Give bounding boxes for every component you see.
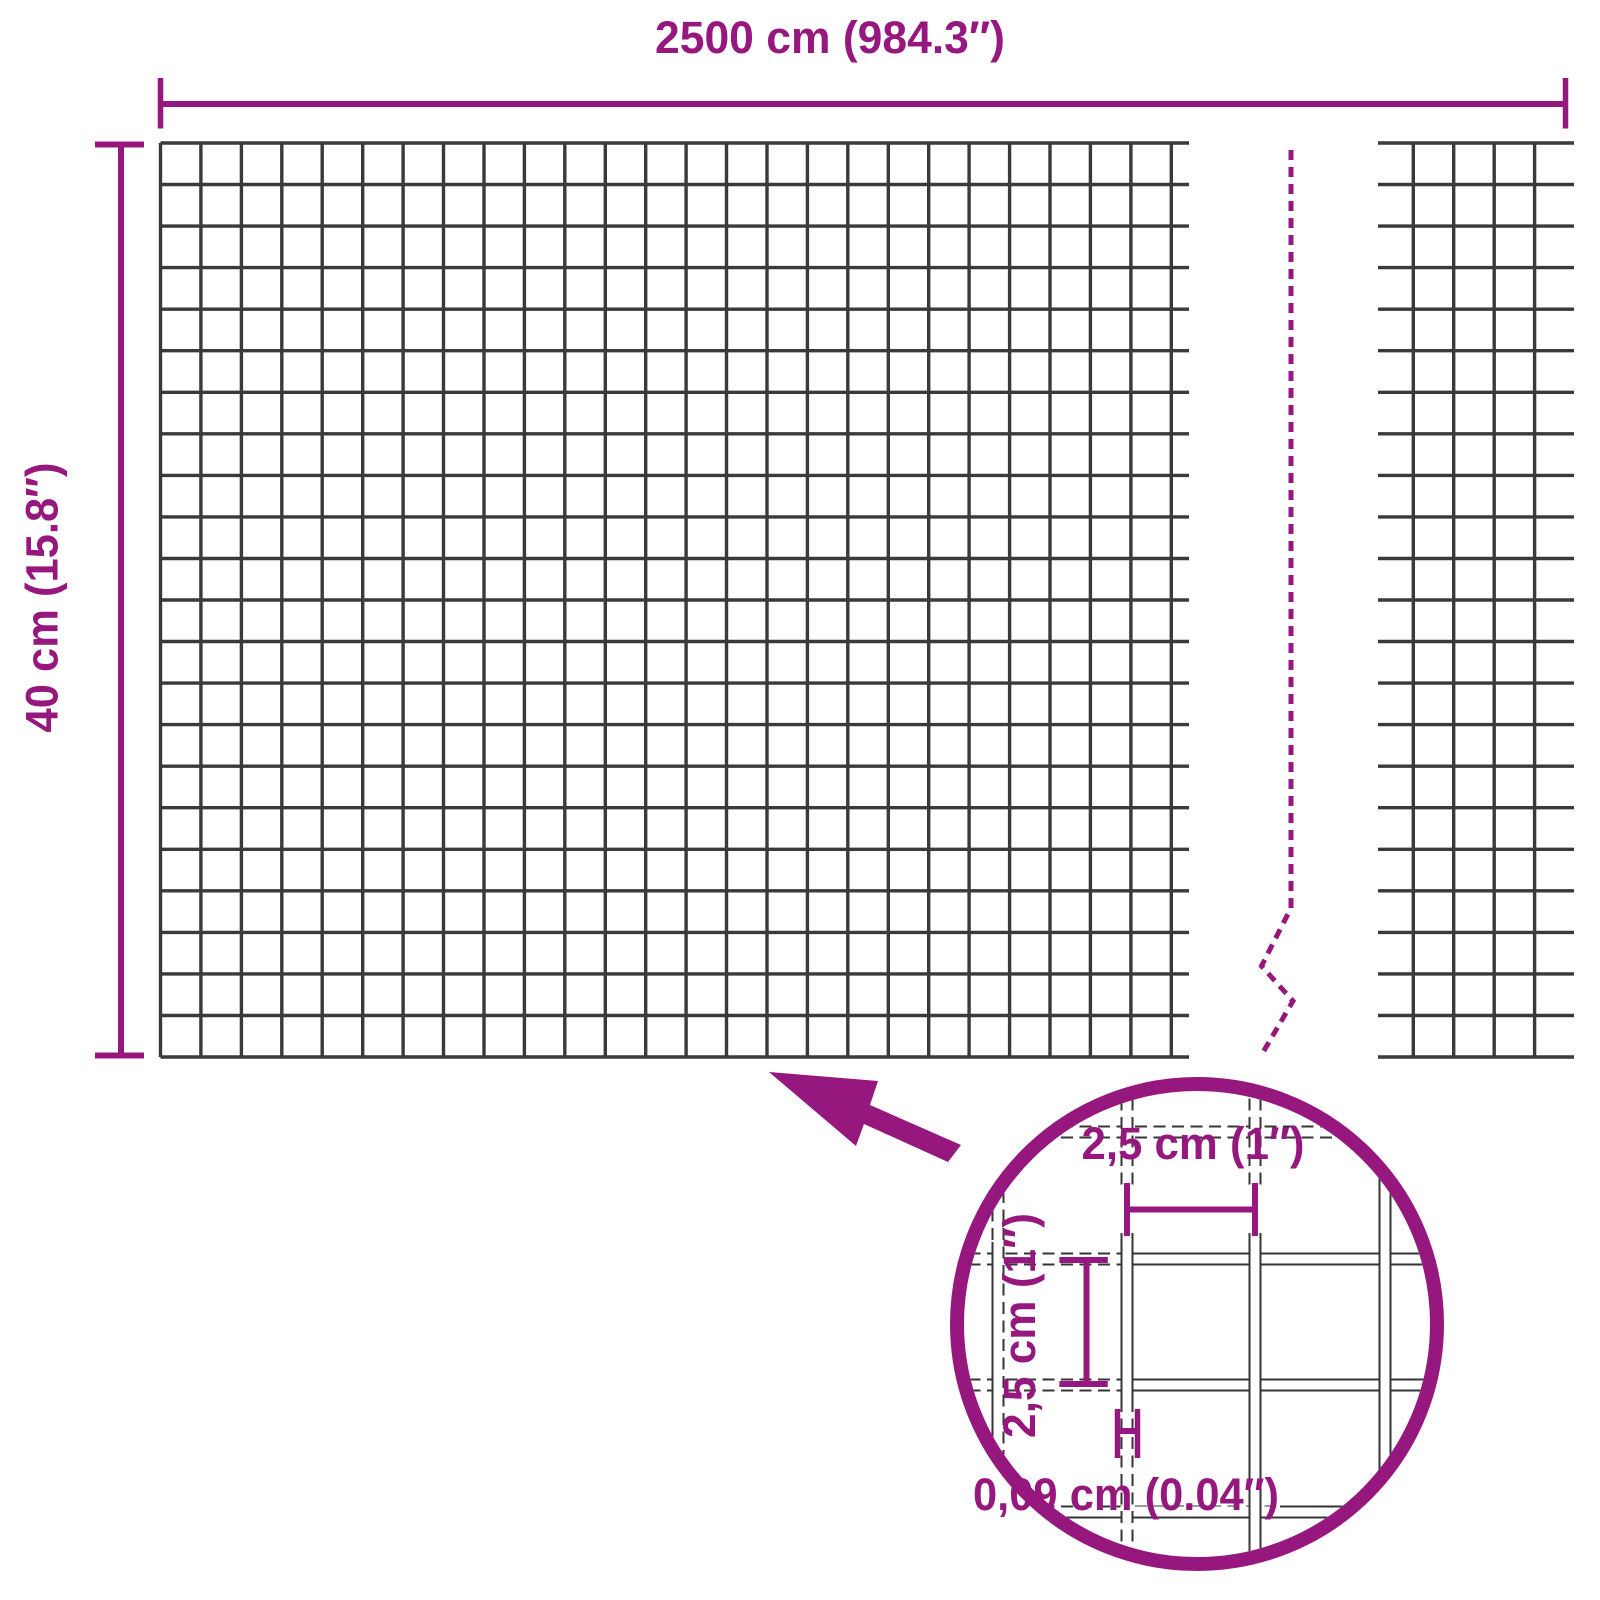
svg-text:2,5 cm (1″): 2,5 cm (1″) — [1082, 1118, 1305, 1169]
svg-text:40 cm (15.8″): 40 cm (15.8″) — [17, 463, 68, 733]
svg-text:2500 cm (984.3″): 2500 cm (984.3″) — [655, 12, 1005, 63]
svg-text:0,09 cm (0.04″): 0,09 cm (0.04″) — [973, 1469, 1279, 1520]
svg-text:2,5 cm (1″): 2,5 cm (1″) — [994, 1213, 1045, 1438]
